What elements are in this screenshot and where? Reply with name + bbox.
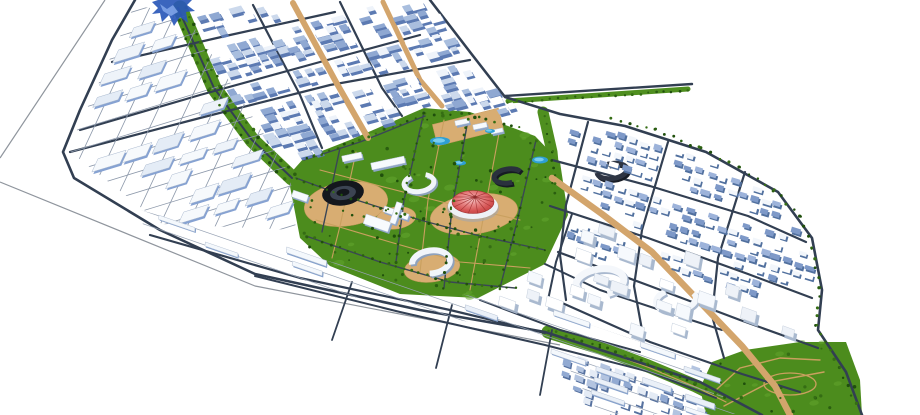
city-masterplan-render bbox=[0, 0, 920, 415]
masterplan-svg bbox=[0, 0, 920, 415]
